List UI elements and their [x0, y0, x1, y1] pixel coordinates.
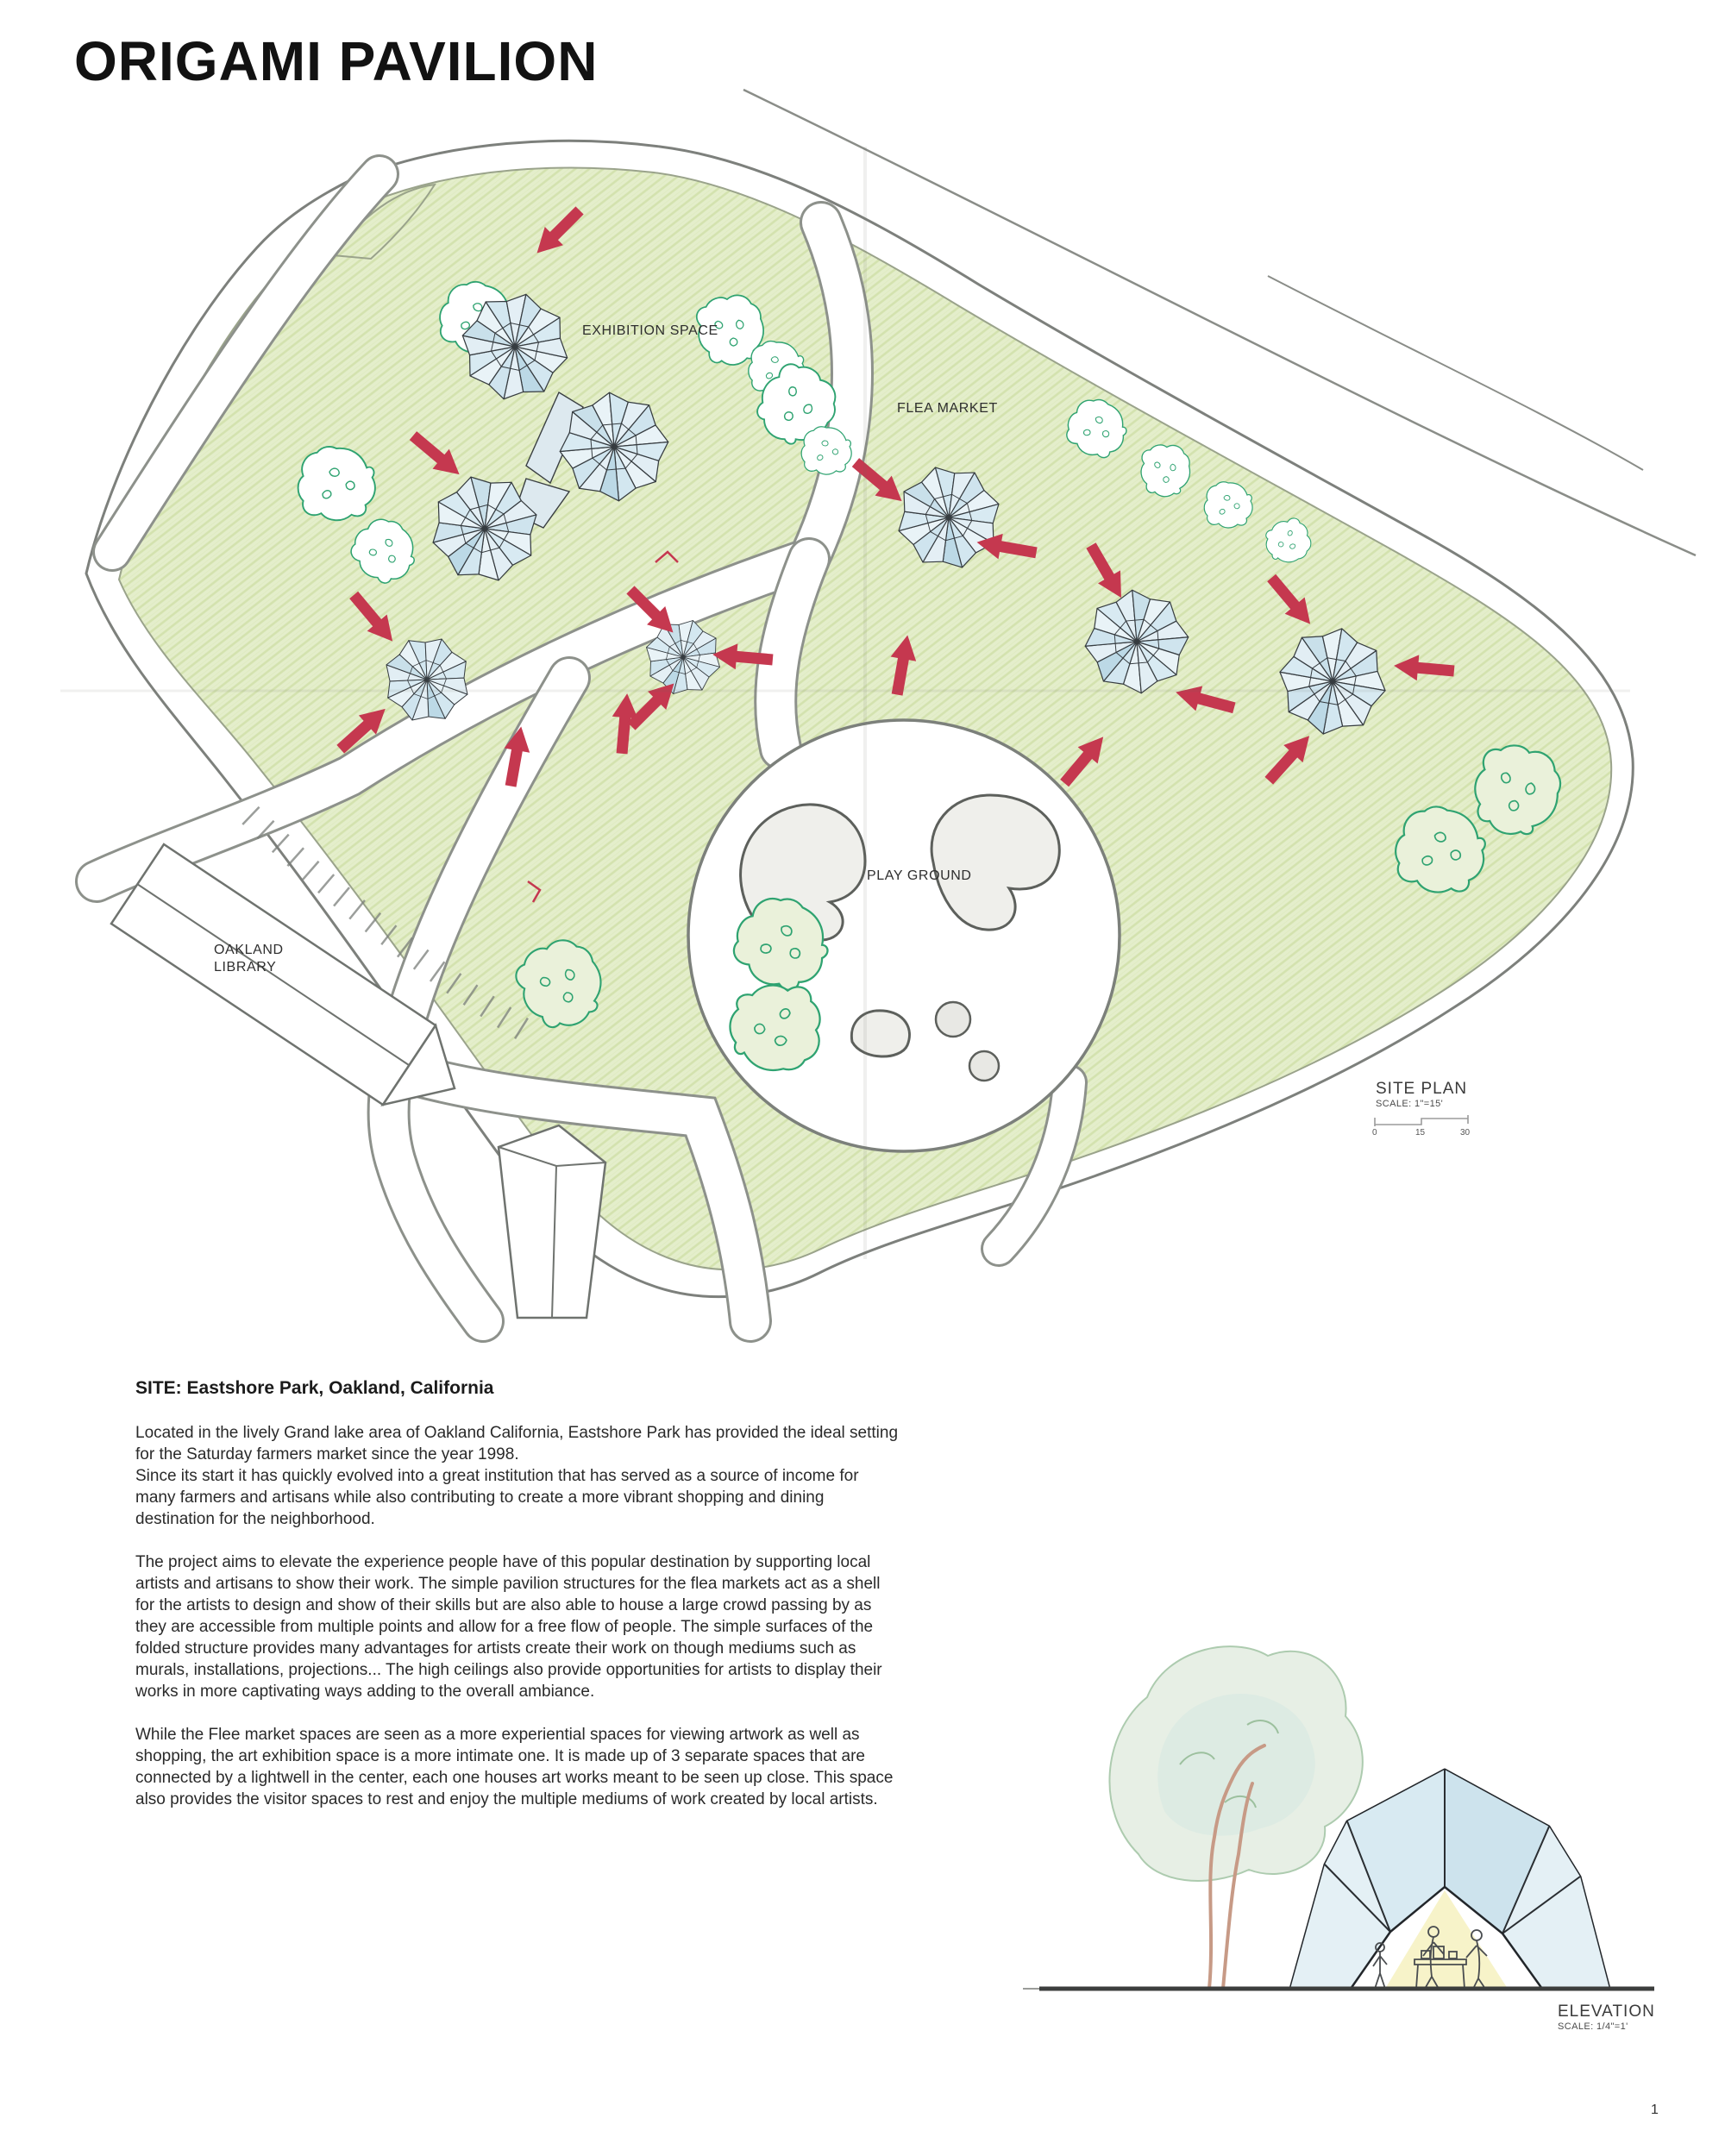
elevation-title: ELEVATION: [1558, 2002, 1655, 2021]
label-oakland-library: OAKLAND LIBRARY: [214, 942, 284, 976]
label-exhibition-space: EXHIBITION SPACE: [582, 323, 718, 340]
scale-bar: [1375, 1115, 1468, 1126]
elevation-scale: SCALE: 1/4"=1': [1558, 2021, 1628, 2032]
site-plan-scale: SCALE: 1"=15': [1376, 1099, 1443, 1109]
playground-boulder: [936, 1002, 970, 1037]
scalebar-end: 30: [1460, 1128, 1470, 1138]
small-building: [499, 1125, 605, 1318]
project-description: SITE: Eastshore Park, Oakland, Californi…: [135, 1378, 899, 1832]
site-plan-title: SITE PLAN: [1376, 1080, 1467, 1099]
road-line: [1268, 276, 1643, 470]
description-heading: SITE: Eastshore Park, Oakland, Californi…: [135, 1378, 899, 1399]
description-paragraph: Located in the lively Grand lake area of…: [135, 1422, 899, 1530]
description-paragraph: While the Flee market spaces are seen as…: [135, 1724, 899, 1810]
scalebar-mid: 15: [1415, 1128, 1425, 1138]
site-plan-drawing: [0, 0, 1725, 1345]
label-play-ground: PLAY GROUND: [867, 868, 972, 885]
description-paragraph: The project aims to elevate the experien…: [135, 1551, 899, 1702]
playground-boulder: [969, 1051, 999, 1081]
page-number: 1: [1651, 2103, 1659, 2118]
label-flea-market: FLEA MARKET: [897, 400, 998, 417]
elevation-drawing: [1018, 1621, 1725, 2035]
scalebar-zero: 0: [1372, 1128, 1377, 1138]
